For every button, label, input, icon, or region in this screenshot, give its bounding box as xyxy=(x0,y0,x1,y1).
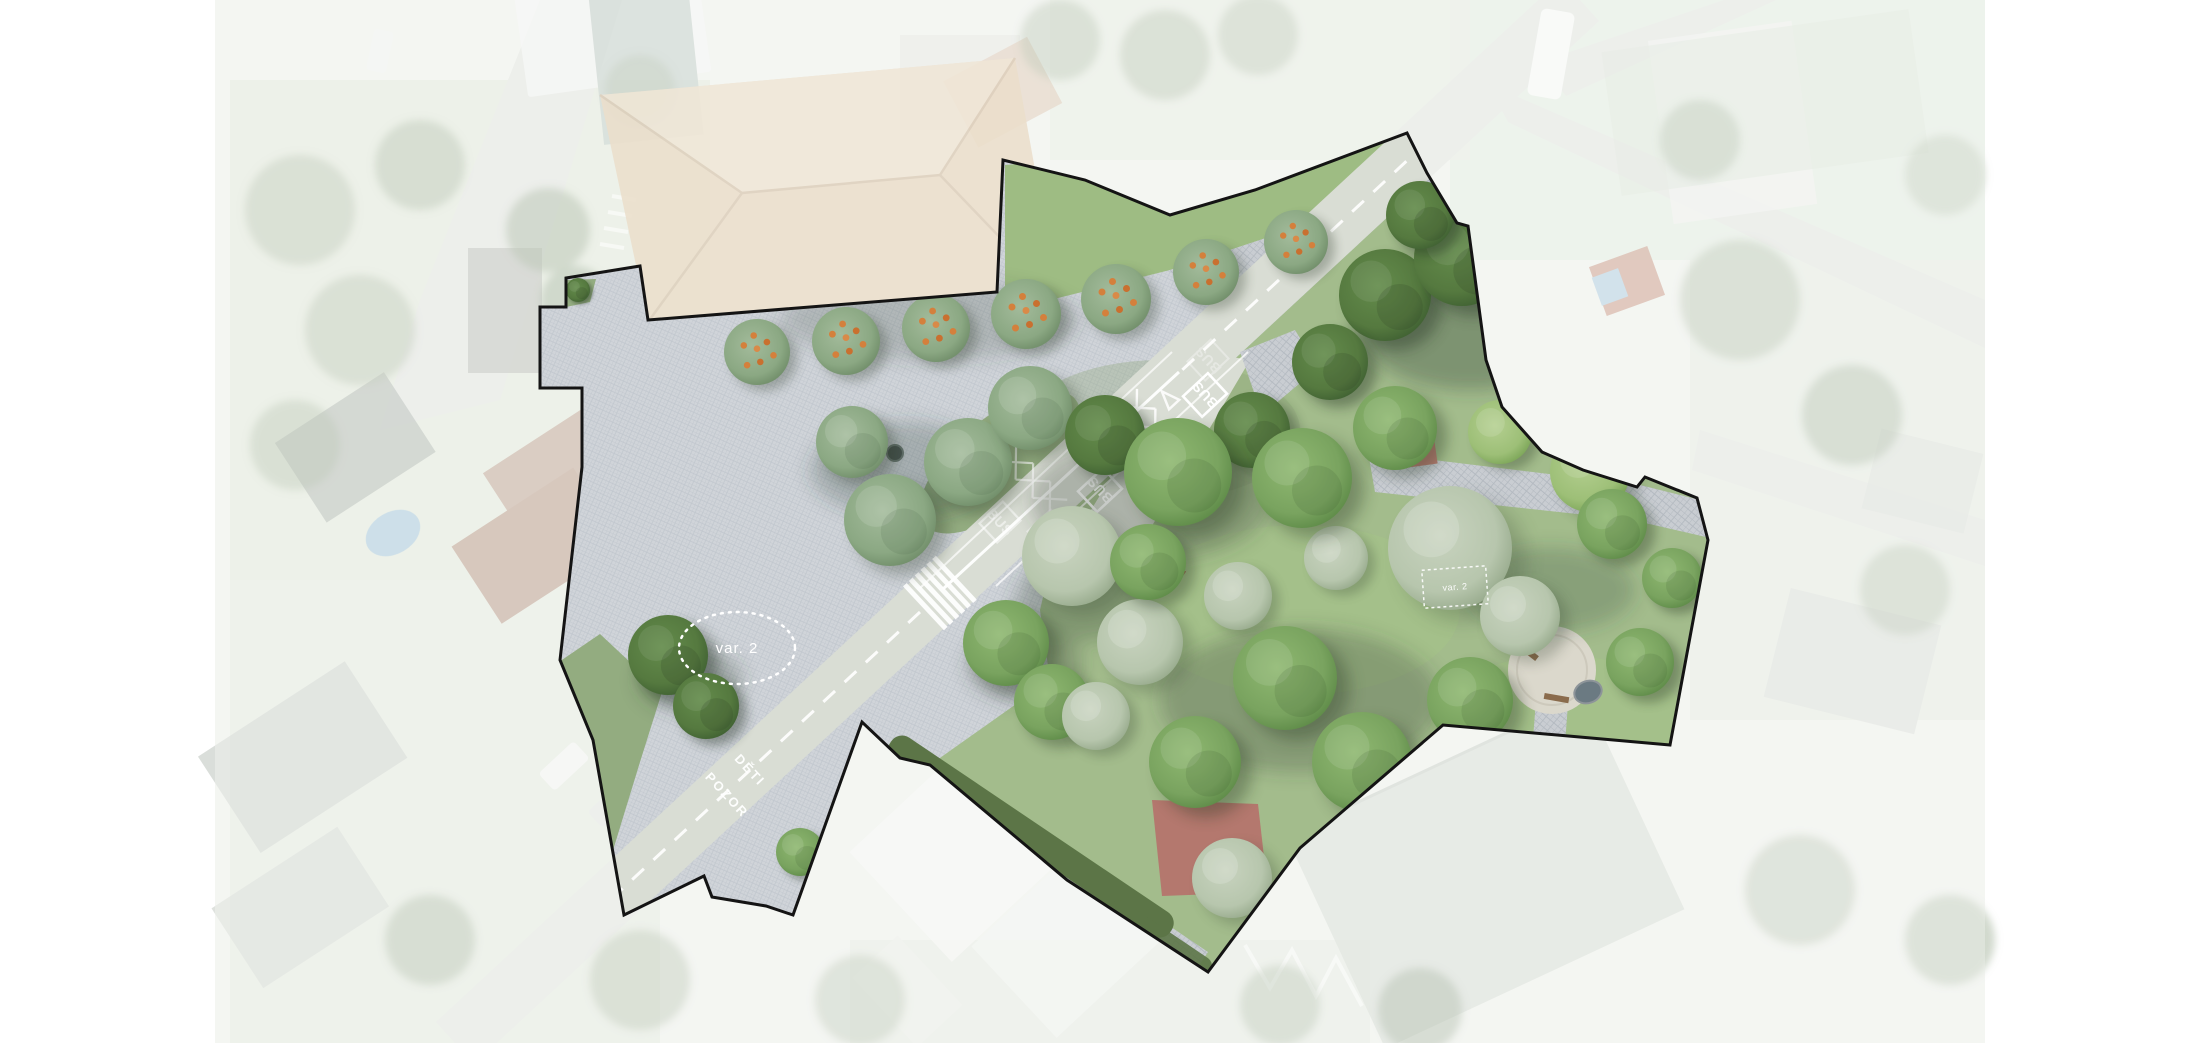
plan-canvas: BUS BUS BUS BUS BUS BUS P xyxy=(0,0,2200,1043)
site-plan: BUS BUS BUS BUS BUS BUS P xyxy=(0,0,2200,1043)
variant-ellipse-label: var. 2 xyxy=(716,640,759,657)
variant-box-label: var. 2 xyxy=(1442,581,1468,593)
